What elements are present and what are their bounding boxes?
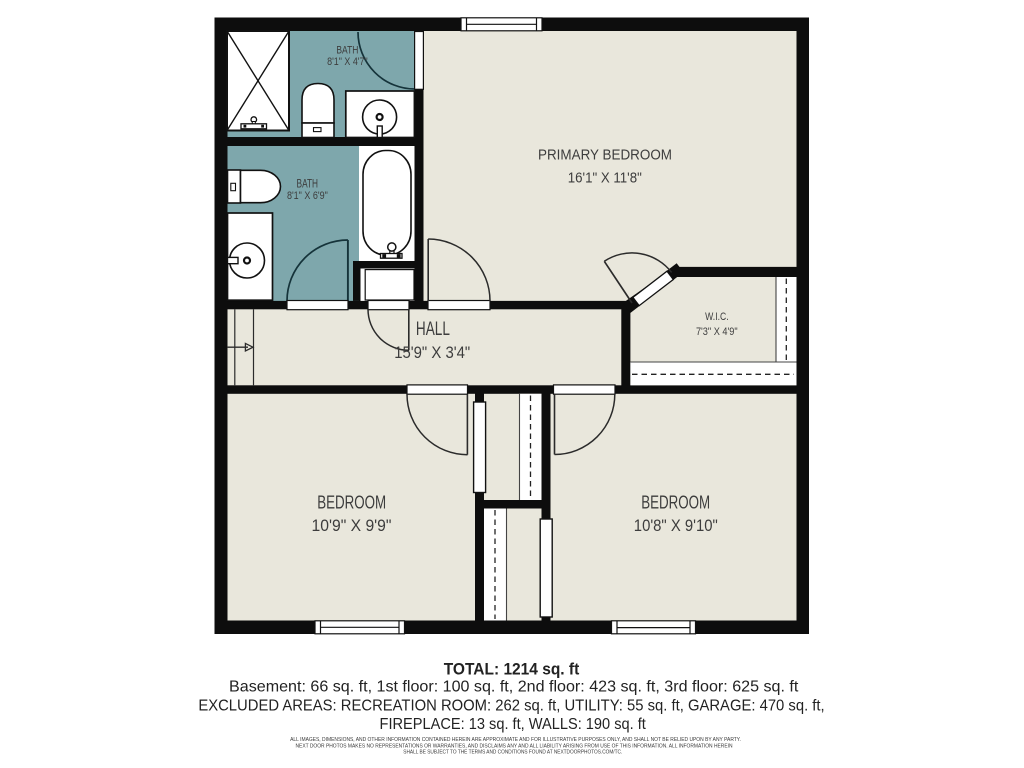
- svg-text:10'9" X 9'9": 10'9" X 9'9": [312, 516, 392, 535]
- svg-text:W.I.C.: W.I.C.: [705, 311, 729, 323]
- svg-text:FIREPLACE: 13 sq. ft, WALLS: 1: FIREPLACE: 13 sq. ft, WALLS: 190 sq. ft: [380, 716, 647, 733]
- svg-text:SHALL BE SUBJECT TO THE TERMS: SHALL BE SUBJECT TO THE TERMS AND CONDIT…: [403, 750, 622, 756]
- svg-text:8'1" X 4'7": 8'1" X 4'7": [327, 56, 368, 68]
- svg-text:NEXT DOOR PHOTOS MAKES NO REPR: NEXT DOOR PHOTOS MAKES NO REPRESENTATION…: [296, 743, 733, 749]
- svg-text:BEDROOM: BEDROOM: [641, 493, 710, 513]
- svg-text:BATH: BATH: [336, 45, 358, 57]
- svg-text:7'3" X 4'9": 7'3" X 4'9": [696, 326, 738, 338]
- svg-text:ALL IMAGES, DIMENSIONS, AND OT: ALL IMAGES, DIMENSIONS, AND OTHER INFORM…: [290, 737, 741, 743]
- svg-text:8'1" X 6'9": 8'1" X 6'9": [287, 190, 328, 202]
- svg-text:BATH: BATH: [297, 179, 319, 191]
- svg-text:Basement: 66 sq. ft, 1st floor: Basement: 66 sq. ft, 1st floor: 100 sq. …: [229, 679, 799, 696]
- svg-text:TOTAL: 1214 sq. ft: TOTAL: 1214 sq. ft: [444, 661, 580, 679]
- svg-text:10'8" X 9'10": 10'8" X 9'10": [634, 516, 718, 535]
- svg-text:PRIMARY BEDROOM: PRIMARY BEDROOM: [538, 146, 672, 163]
- svg-text:15'9" X 3'4": 15'9" X 3'4": [394, 343, 470, 362]
- svg-text:HALL: HALL: [416, 318, 450, 340]
- svg-text:BEDROOM: BEDROOM: [317, 493, 386, 513]
- svg-text:EXCLUDED AREAS: RECREATION ROO: EXCLUDED AREAS: RECREATION ROOM: 262 sq.…: [198, 697, 824, 714]
- svg-text:16'1" X 11'8": 16'1" X 11'8": [568, 169, 642, 186]
